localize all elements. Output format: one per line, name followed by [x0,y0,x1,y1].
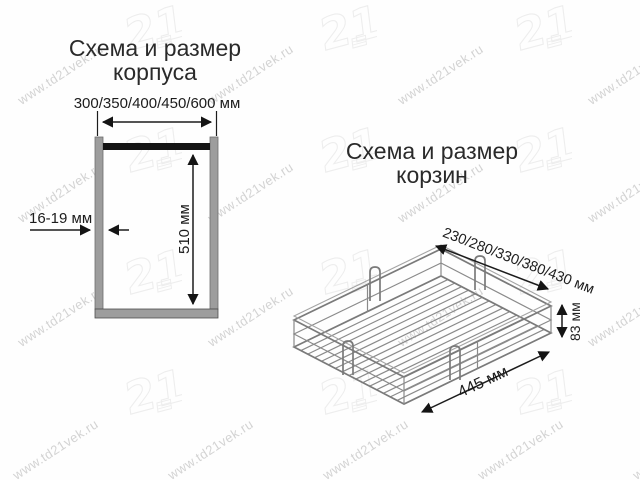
cabinet-title: Схема и размер корпуса [55,36,255,84]
cabinet-title-line2: корпуса [55,60,255,84]
basket-title-line1: Схема и размер [332,139,532,163]
wire-basket [294,245,551,404]
basket-wire [349,305,496,376]
basket-title-line2: корзин [332,163,532,187]
basket-height-label: 83 мм [567,302,583,341]
basket-wire [308,283,455,354]
cabinet-thickness-label: 16-19 мм [29,210,92,227]
basket-bracket [370,267,380,301]
basket-wire [356,308,503,379]
basket-wire [328,294,475,365]
cabinet-width-label: 300/350/400/450/600 мм [57,95,257,112]
basket-wire [342,301,489,372]
basket-wire [301,280,448,351]
basket-wire [315,287,462,358]
basket-wire [383,322,530,393]
diagram-canvas: www.td21vek.ruwww.td21vek.ruwww.td21vek.… [0,0,640,480]
cabinet-height-label: 510 мм [176,204,193,254]
basket-title: Схема и размер корзин [332,139,532,187]
cabinet-title-line1: Схема и размер [55,36,255,60]
